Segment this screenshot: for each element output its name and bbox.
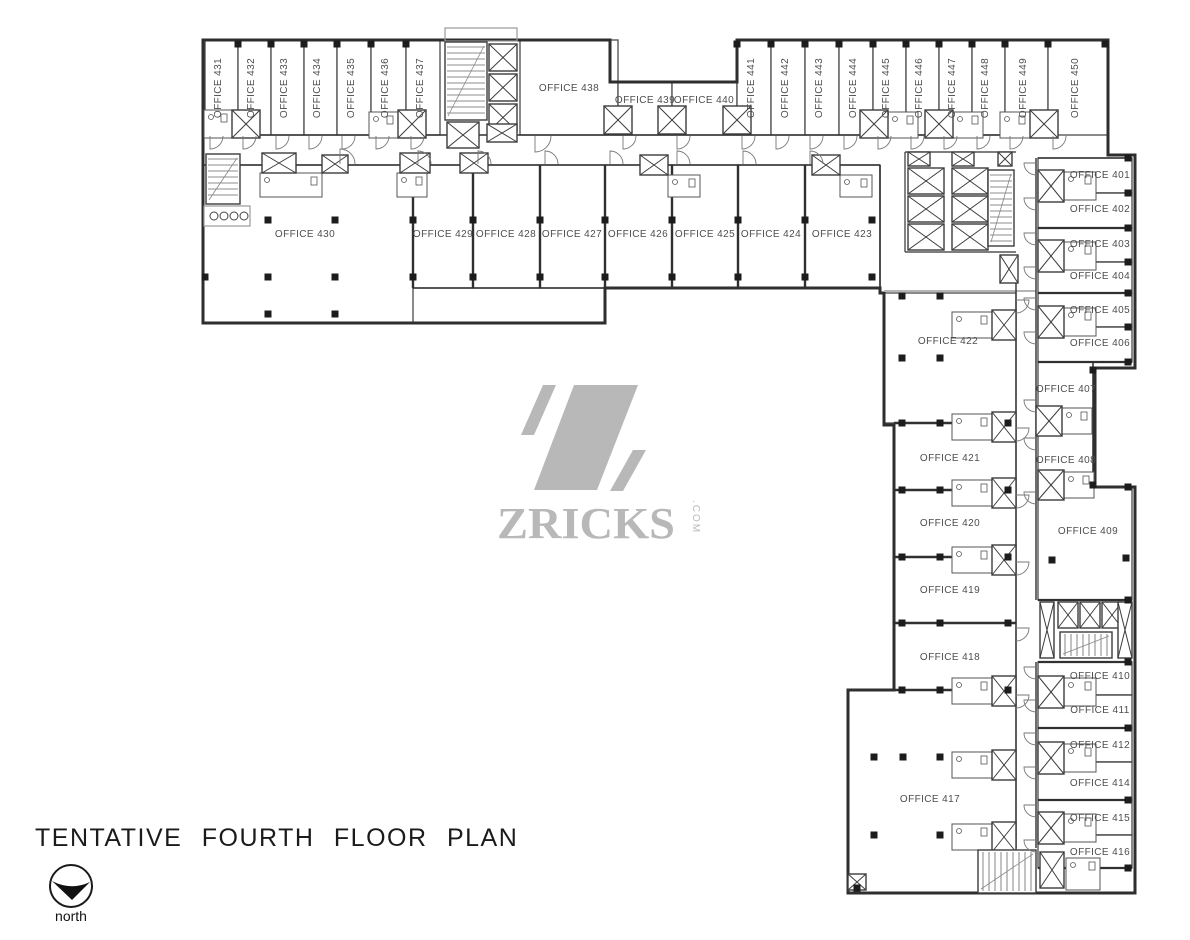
- door-arc: [1024, 198, 1036, 210]
- label-office-426: OFFICE 426: [608, 229, 668, 240]
- column-marker: [1005, 420, 1012, 427]
- column-marker: [899, 554, 906, 561]
- column-marker: [899, 620, 906, 627]
- column-marker: [871, 754, 878, 761]
- room-office-409: [1038, 487, 1132, 600]
- label-office-410: OFFICE 410: [1070, 671, 1130, 682]
- column-marker: [1005, 687, 1012, 694]
- label-office-411: OFFICE 411: [1070, 705, 1129, 716]
- label-office-418: OFFICE 418: [920, 652, 980, 663]
- column-marker: [1125, 290, 1132, 297]
- column-marker: [969, 41, 976, 48]
- column-marker: [1125, 155, 1132, 162]
- label-office-406: OFFICE 406: [1070, 338, 1130, 349]
- label-office-412: OFFICE 412: [1070, 740, 1130, 751]
- label-office-402: OFFICE 402: [1070, 204, 1130, 215]
- label-office-428: OFFICE 428: [476, 229, 536, 240]
- north-arrow: north: [44, 860, 100, 926]
- column-marker: [871, 832, 878, 839]
- column-marker: [900, 754, 907, 761]
- column-marker: [870, 41, 877, 48]
- door-arc: [1024, 267, 1036, 279]
- column-marker: [470, 274, 477, 281]
- column-marker: [1123, 555, 1130, 562]
- label-office-432: OFFICE 432: [246, 58, 257, 118]
- column-marker: [802, 274, 809, 281]
- door-arc: [743, 151, 756, 164]
- column-marker: [937, 487, 944, 494]
- label-office-416: OFFICE 416: [1070, 847, 1130, 858]
- label-office-414: OFFICE 414: [1070, 778, 1130, 789]
- door-arc: [1024, 667, 1036, 679]
- label-office-409: OFFICE 409: [1058, 526, 1118, 537]
- door-arc: [1024, 700, 1036, 712]
- column-marker: [937, 293, 944, 300]
- column-marker: [265, 217, 272, 224]
- label-office-421: OFFICE 421: [920, 453, 980, 464]
- column-marker: [602, 217, 609, 224]
- column-marker: [1049, 557, 1056, 564]
- door-arc: [677, 151, 690, 164]
- north-label: north: [55, 908, 87, 924]
- column-marker: [903, 41, 910, 48]
- column-marker: [1125, 484, 1132, 491]
- label-office-420: OFFICE 420: [920, 518, 980, 529]
- label-office-429: OFFICE 429: [413, 229, 473, 240]
- door-arc: [276, 136, 289, 149]
- label-office-427: OFFICE 427: [542, 229, 602, 240]
- door-arc: [844, 136, 857, 149]
- door-arc: [1024, 233, 1036, 245]
- column-marker: [836, 41, 843, 48]
- column-marker: [1125, 359, 1132, 366]
- column-marker: [1125, 259, 1132, 266]
- column-marker: [937, 687, 944, 694]
- door-arc: [1024, 332, 1036, 344]
- door-arc: [535, 136, 551, 152]
- column-marker: [899, 420, 906, 427]
- label-office-443: OFFICE 443: [814, 58, 825, 118]
- door-arc: [1024, 767, 1036, 779]
- column-marker: [936, 41, 943, 48]
- watermark-logo-slash-thin: [610, 450, 646, 491]
- door-arc: [1024, 805, 1036, 817]
- door-arc: [1024, 163, 1036, 175]
- door-arc: [309, 136, 322, 149]
- label-office-447: OFFICE 447: [947, 58, 958, 118]
- door-arc: [1016, 695, 1029, 708]
- label-office-405: OFFICE 405: [1070, 305, 1130, 316]
- washroom: [1062, 408, 1092, 434]
- room-office-424: [738, 165, 805, 288]
- watermark: ZRICKS .COM: [495, 378, 710, 556]
- column-marker: [869, 274, 876, 281]
- column-marker: [669, 274, 676, 281]
- label-office-448: OFFICE 448: [980, 58, 991, 118]
- column-marker: [332, 311, 339, 318]
- door-arc: [1016, 562, 1029, 575]
- door-arc: [342, 136, 355, 149]
- door-arc: [1024, 438, 1036, 450]
- column-marker: [403, 41, 410, 48]
- column-marker: [869, 217, 876, 224]
- column-marker: [332, 217, 339, 224]
- column-marker: [1125, 865, 1132, 872]
- column-marker: [802, 217, 809, 224]
- column-marker: [1045, 41, 1052, 48]
- door-arc: [677, 136, 690, 149]
- label-office-433: OFFICE 433: [279, 58, 290, 118]
- column-marker: [265, 274, 272, 281]
- door-arc: [1024, 492, 1036, 504]
- column-marker: [1125, 797, 1132, 804]
- column-marker: [1005, 620, 1012, 627]
- label-office-408: OFFICE 408: [1036, 455, 1096, 466]
- column-marker: [669, 217, 676, 224]
- watermark-tld-text: .COM: [690, 500, 701, 534]
- label-office-419: OFFICE 419: [920, 585, 980, 596]
- column-marker: [1125, 190, 1132, 197]
- label-office-401: OFFICE 401: [1070, 170, 1130, 181]
- door-arc: [545, 151, 558, 164]
- column-marker: [202, 274, 209, 281]
- label-office-445: OFFICE 445: [881, 58, 892, 118]
- column-marker: [265, 311, 272, 318]
- label-office-444: OFFICE 444: [848, 58, 859, 118]
- label-office-417: OFFICE 417: [900, 794, 960, 805]
- column-marker: [301, 41, 308, 48]
- column-marker: [735, 274, 742, 281]
- label-office-446: OFFICE 446: [914, 58, 925, 118]
- column-marker: [332, 274, 339, 281]
- column-marker: [1005, 554, 1012, 561]
- room-office-428: [473, 165, 540, 288]
- column-marker: [899, 293, 906, 300]
- column-marker: [537, 217, 544, 224]
- door-arc: [776, 136, 789, 149]
- label-office-415: OFFICE 415: [1070, 813, 1130, 824]
- label-office-441: OFFICE 441: [746, 58, 757, 118]
- watermark-brand-text: ZRICKS: [497, 499, 675, 548]
- door-arc: [1024, 733, 1036, 745]
- column-marker: [937, 355, 944, 362]
- label-office-407: OFFICE 407: [1036, 384, 1096, 395]
- column-marker: [235, 41, 242, 48]
- column-marker: [802, 41, 809, 48]
- watermark-logo-slash-small: [521, 385, 556, 435]
- room-office-427: [540, 165, 605, 288]
- door-arc: [1024, 400, 1036, 412]
- column-marker: [937, 554, 944, 561]
- label-office-436: OFFICE 436: [380, 58, 391, 118]
- label-office-404: OFFICE 404: [1070, 271, 1130, 282]
- washroom: [397, 173, 427, 197]
- plan-title: TENTATIVE FOURTH FLOOR PLAN: [35, 824, 518, 853]
- column-marker: [854, 885, 861, 892]
- label-office-434: OFFICE 434: [312, 58, 323, 118]
- label-office-424: OFFICE 424: [741, 229, 801, 240]
- column-marker: [410, 274, 417, 281]
- floor-plan-page: OFFICE 431OFFICE 432OFFICE 433OFFICE 434…: [0, 0, 1190, 940]
- door-arc: [810, 136, 823, 149]
- column-marker: [1090, 367, 1097, 374]
- column-marker: [937, 832, 944, 839]
- label-office-437: OFFICE 437: [415, 58, 426, 118]
- column-marker: [937, 620, 944, 627]
- column-marker: [899, 487, 906, 494]
- label-office-440: OFFICE 440: [674, 95, 734, 106]
- column-marker: [537, 274, 544, 281]
- label-office-438: OFFICE 438: [539, 83, 599, 94]
- door-arc: [623, 136, 636, 149]
- label-office-450: OFFICE 450: [1070, 58, 1081, 118]
- label-office-449: OFFICE 449: [1018, 58, 1029, 118]
- column-marker: [1125, 225, 1132, 232]
- label-office-439: OFFICE 439: [615, 95, 675, 106]
- door-arc: [1016, 428, 1029, 441]
- door-arc: [1016, 300, 1029, 313]
- column-marker: [1102, 41, 1109, 48]
- column-marker: [1125, 324, 1132, 331]
- label-office-435: OFFICE 435: [346, 58, 357, 118]
- column-marker: [470, 217, 477, 224]
- door-arc: [1016, 628, 1029, 641]
- label-office-422: OFFICE 422: [918, 336, 978, 347]
- column-marker: [937, 420, 944, 427]
- door-arc: [610, 151, 623, 164]
- label-office-442: OFFICE 442: [780, 58, 791, 118]
- column-marker: [1090, 482, 1097, 489]
- column-marker: [735, 217, 742, 224]
- column-marker: [410, 217, 417, 224]
- column-marker: [937, 754, 944, 761]
- room-office-426: [605, 165, 672, 288]
- column-marker: [1125, 659, 1132, 666]
- column-marker: [602, 274, 609, 281]
- column-marker: [768, 41, 775, 48]
- label-office-430: OFFICE 430: [275, 229, 335, 240]
- column-marker: [1005, 487, 1012, 494]
- door-arc: [1016, 495, 1029, 508]
- column-marker: [268, 41, 275, 48]
- column-marker: [1002, 41, 1009, 48]
- door-arc: [742, 136, 755, 149]
- column-marker: [734, 41, 741, 48]
- column-marker: [899, 355, 906, 362]
- column-marker: [1125, 725, 1132, 732]
- label-office-425: OFFICE 425: [675, 229, 735, 240]
- column-marker: [899, 687, 906, 694]
- column-marker: [1125, 597, 1132, 604]
- label-office-423: OFFICE 423: [812, 229, 872, 240]
- column-marker: [334, 41, 341, 48]
- column-marker: [368, 41, 375, 48]
- label-office-431: OFFICE 431: [213, 58, 224, 118]
- label-office-403: OFFICE 403: [1070, 239, 1130, 250]
